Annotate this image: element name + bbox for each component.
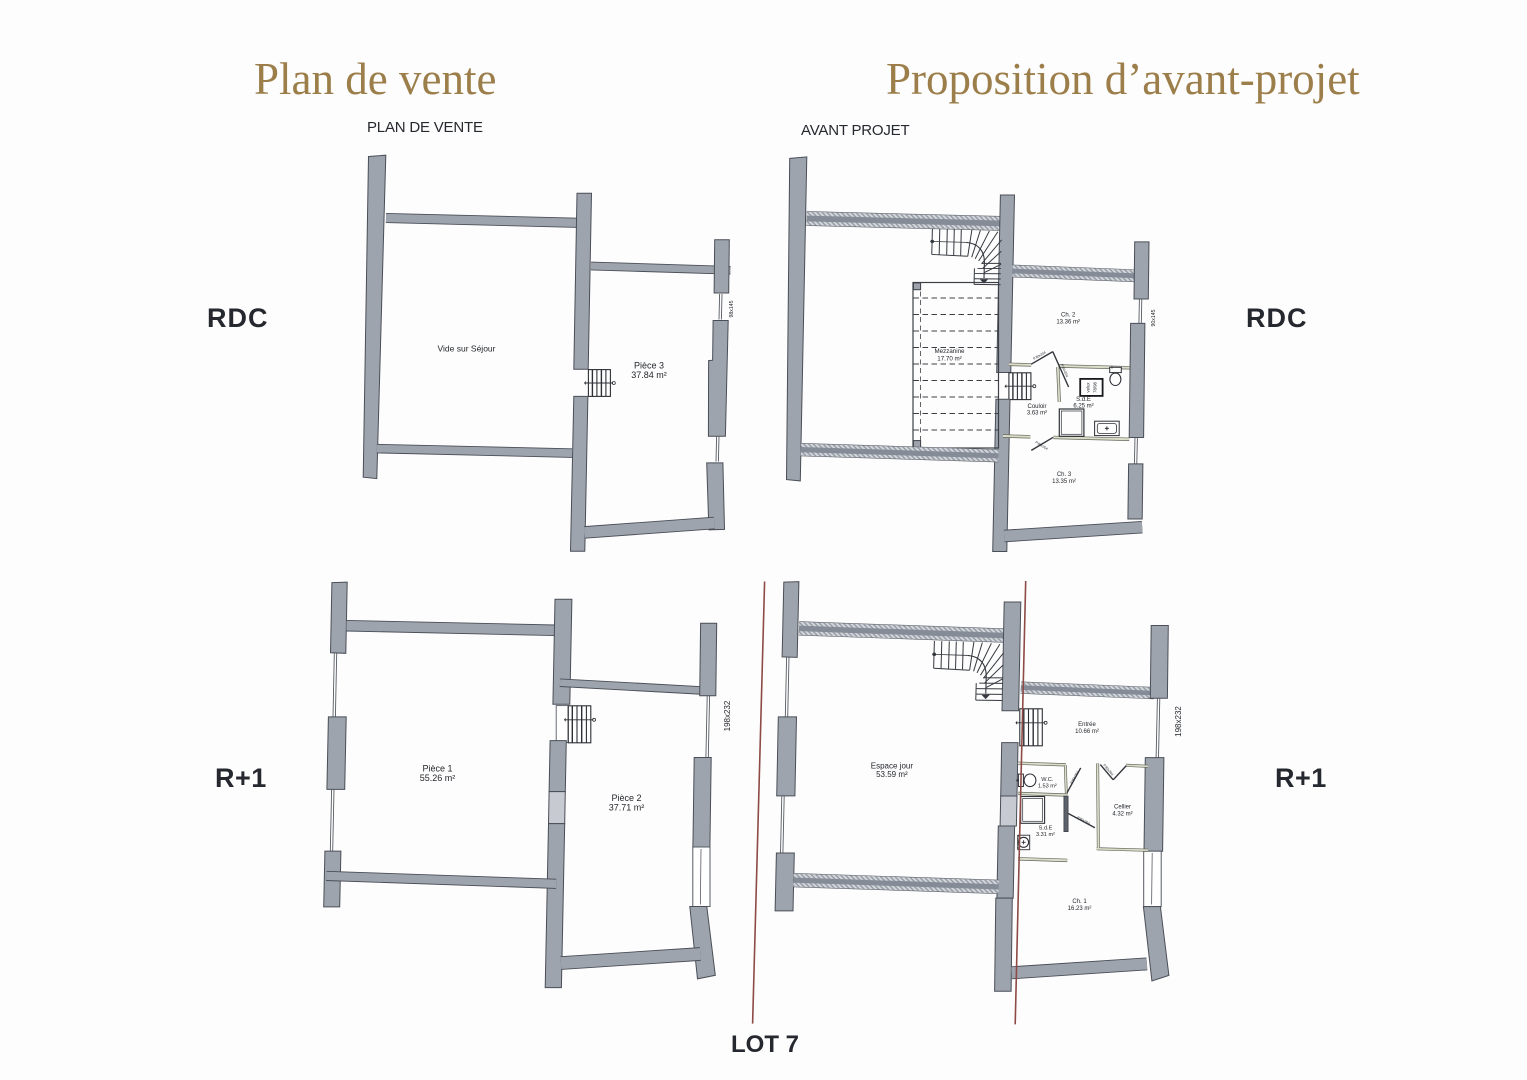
svg-text:1.53 m²: 1.53 m² — [1038, 784, 1057, 790]
svg-text:90x145: 90x145 — [1151, 309, 1157, 326]
svg-text:Cellier: Cellier — [1114, 805, 1131, 811]
svg-text:Pièce 3: Pièce 3 — [634, 361, 664, 371]
svg-text:S.d.E: S.d.E — [1076, 397, 1091, 403]
svg-text:10.66 m²: 10.66 m² — [1075, 729, 1099, 735]
svg-text:3.31 m²: 3.31 m² — [1036, 832, 1055, 838]
svg-text:Ch. 2: Ch. 2 — [1061, 313, 1076, 319]
svg-text:Vide sur Séjour: Vide sur Séjour — [438, 344, 496, 354]
svg-text:13.35 m²: 13.35 m² — [1052, 479, 1076, 485]
svg-text:17.70 m²: 17.70 m² — [937, 356, 961, 363]
svg-text:16.23 m²: 16.23 m² — [1068, 906, 1092, 912]
svg-text:3.63 m²: 3.63 m² — [1027, 411, 1047, 417]
svg-text:98x145: 98x145 — [729, 300, 735, 317]
svg-text:37.84 m²: 37.84 m² — [631, 370, 667, 380]
svg-text:13.36 m²: 13.36 m² — [1056, 319, 1080, 325]
svg-text:Ch. 3: Ch. 3 — [1057, 472, 1072, 478]
svg-text:78/98: 78/98 — [1093, 381, 1098, 393]
svg-text:W.C.: W.C. — [1041, 777, 1054, 783]
svg-text:velux: velux — [1086, 382, 1091, 393]
svg-text:198x232: 198x232 — [1174, 706, 1183, 737]
svg-text:P.80x204: P.80x204 — [1070, 770, 1080, 784]
svg-text:6.25 m²: 6.25 m² — [1073, 404, 1093, 410]
svg-text:198x232: 198x232 — [723, 700, 732, 731]
svg-text:S.d.E: S.d.E — [1039, 826, 1053, 832]
svg-text:55.26 m²: 55.26 m² — [420, 773, 456, 783]
svg-text:Pièce 1: Pièce 1 — [422, 764, 452, 774]
svg-text:Pièce 2: Pièce 2 — [611, 793, 641, 803]
svg-text:53.59 m²: 53.59 m² — [876, 770, 908, 779]
svg-text:Entrée: Entrée — [1078, 722, 1096, 728]
svg-text:37.71 m²: 37.71 m² — [609, 803, 645, 813]
svg-text:Ch. 1: Ch. 1 — [1072, 899, 1087, 905]
svg-text:4.32 m²: 4.32 m² — [1112, 811, 1132, 817]
svg-text:Mezzanine: Mezzanine — [935, 348, 965, 355]
svg-text:Couloir: Couloir — [1027, 404, 1046, 410]
